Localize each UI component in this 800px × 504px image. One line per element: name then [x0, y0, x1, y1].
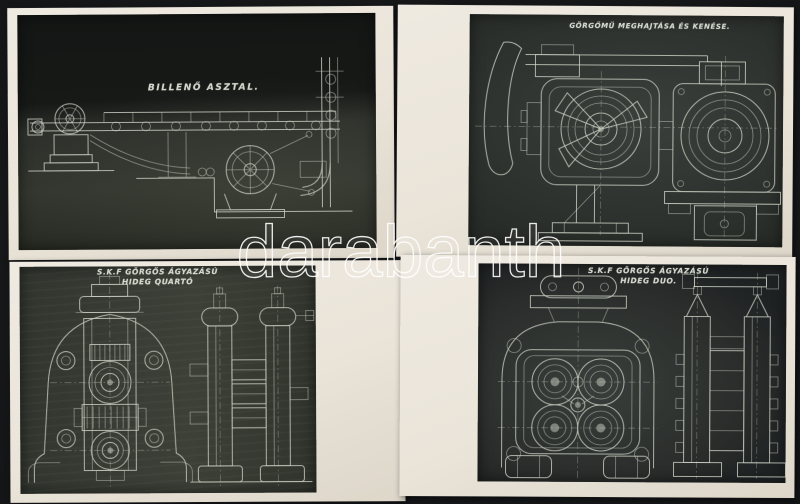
photo-board: BILLENŐ ASZTAL. [0, 0, 800, 504]
photo-hideg-duo: S.K.F GÖRGŐS ÁGYAZÁSÚ HIDEG DUO. [399, 255, 795, 498]
blueprint-drawing-gear-drive [468, 14, 784, 247]
blueprint-title: GÖRGŐMŰ MEGHAJTÁSA ÉS KENÉSE. [550, 22, 750, 31]
photo-billeno-asztal: BILLENŐ ASZTAL. [7, 6, 395, 260]
blueprint-print-duo: S.K.F GÖRGŐS ÁGYAZÁSÚ HIDEG DUO. [477, 263, 786, 483]
blueprint-drawing-quarto-mill [19, 266, 316, 494]
blueprint-drawing-duo-mill [477, 263, 786, 483]
photo-gorgomu-meghajtasa: GÖRGŐMŰ MEGHAJTÁSA ÉS KENÉSE. [396, 5, 794, 260]
blueprint-title-line2: HIDEG DUO. [548, 276, 748, 287]
blueprint-drawing-roller-table [17, 13, 376, 250]
blueprint-title: S.K.F GÖRGŐS ÁGYAZÁSÚ HIDEG DUO. [548, 266, 748, 287]
blueprint-print-billeno-asztal: BILLENŐ ASZTAL. [17, 13, 376, 250]
blueprint-title: S.K.F GÖRGŐS ÁGYAZÁSÚ HIDEG QUARTÓ [58, 267, 258, 288]
blueprint-print-gear-drive: GÖRGŐMŰ MEGHAJTÁSA ÉS KENÉSE. [468, 14, 784, 247]
blueprint-title: BILLENŐ ASZTAL. [104, 82, 304, 93]
blueprint-print-quarto: S.K.F GÖRGŐS ÁGYAZÁSÚ HIDEG QUARTÓ [19, 266, 316, 494]
blueprint-title-line2: HIDEG QUARTÓ [58, 277, 258, 288]
photo-hideg-quarto: S.K.F GÖRGŐS ÁGYAZÁSÚ HIDEG QUARTÓ [9, 260, 405, 503]
